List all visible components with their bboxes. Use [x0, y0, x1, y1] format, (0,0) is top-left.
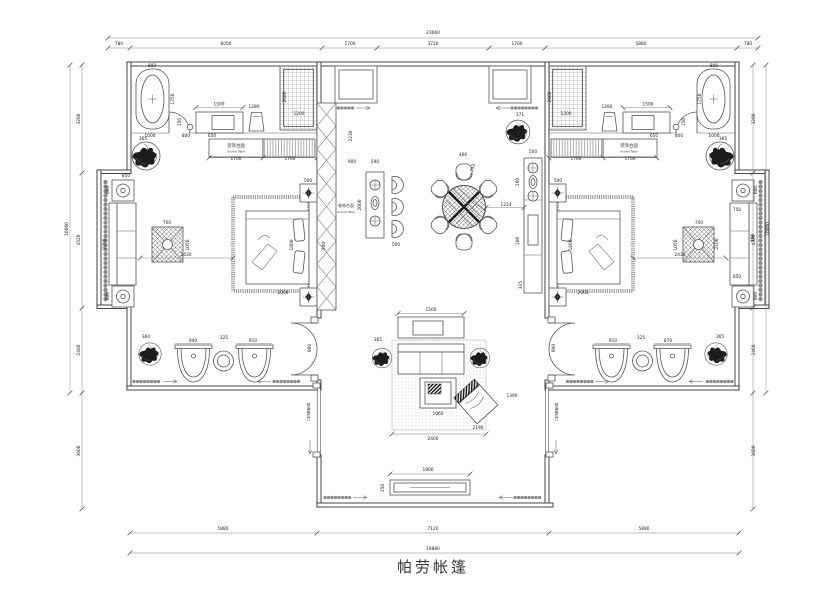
dim-label: 1700 — [285, 156, 296, 162]
dim-label: 590 — [371, 159, 379, 165]
dim-label: 1224 — [501, 202, 512, 208]
dim-label: 800 — [710, 63, 718, 69]
dim-label: 700 — [695, 220, 703, 226]
dim-label: 500 — [529, 149, 537, 155]
dim-label: 160 — [515, 237, 521, 245]
dim-label: 365 — [716, 334, 724, 340]
dim-label: 900 — [551, 344, 557, 352]
dim-label: 650 — [208, 133, 216, 139]
dim-label: 2000 — [357, 199, 363, 210]
dim-label: 500 — [554, 178, 562, 184]
dim-label: 1200 — [294, 111, 305, 117]
dim-label: 1800 — [423, 467, 434, 473]
dim-label: 1700 — [571, 156, 582, 162]
plan-label: 玻璃推拉门 — [306, 402, 311, 421]
dim-label: 2000 — [278, 290, 289, 296]
dim-label: 1700 — [231, 156, 242, 162]
plan-label: Accent Table — [227, 150, 245, 154]
dim-label: 2680 — [547, 91, 553, 102]
dim-label: 600 — [105, 186, 111, 194]
dim-label: 1280 — [249, 104, 260, 110]
dim-label: 800 — [182, 133, 190, 139]
dim-label: 350 — [380, 484, 386, 492]
dim-label: 466 — [459, 152, 467, 158]
side-console — [524, 158, 542, 293]
dim-label: 3280 — [76, 113, 82, 124]
entry-planter-right — [489, 66, 531, 103]
dim-label: 5880 — [636, 41, 647, 47]
dim-label: 365 — [139, 136, 147, 142]
dim-label: 360 — [142, 334, 150, 340]
plan-label: 玻璃推拉门 — [554, 402, 559, 421]
dim-label: 1700 — [512, 41, 523, 47]
dim-label: 10060 — [765, 222, 771, 236]
tv-sideboard — [396, 311, 467, 338]
dim-label: 1500 — [214, 102, 225, 108]
dim-label: 1050 — [673, 239, 679, 250]
plan-label: Accent Table — [337, 210, 355, 214]
dim-label: 3600 — [751, 445, 757, 456]
dim-label: 800 — [675, 133, 683, 139]
left-wing-plan — [97, 62, 321, 507]
dim-label: 1200 — [561, 111, 572, 117]
dim-label: 3600 — [76, 445, 82, 456]
side-table-left — [372, 348, 392, 368]
dim-label: 1750 — [697, 93, 703, 104]
dim-label: 2430 — [675, 252, 686, 258]
bar-console — [366, 172, 384, 238]
dim-label: 1280 — [602, 104, 613, 110]
center-plant — [506, 120, 530, 144]
dim-label: 160 — [515, 178, 521, 186]
dim-label: 910 — [609, 338, 617, 344]
dim-label: 1390 — [507, 393, 518, 399]
entry-planter-left — [335, 66, 377, 103]
dim-label: 900 — [348, 159, 356, 165]
dim-label: 365 — [374, 337, 382, 343]
dim-label: 600 — [105, 292, 111, 300]
dim-label: 800 — [148, 63, 156, 69]
dim-label: 2680 — [282, 91, 288, 102]
bottom-curtains — [325, 496, 541, 500]
dim-label: 2460 — [76, 344, 82, 355]
dim-label: 1750 — [170, 93, 176, 104]
dim-label: 325 — [518, 281, 524, 289]
dim-label: 7120 — [428, 526, 439, 532]
dim-label: 1500 — [426, 307, 437, 313]
top-wall — [127, 62, 739, 66]
dim-label: 600 — [753, 292, 759, 300]
diamond-partition — [317, 103, 336, 310]
dim-label: 500 — [321, 242, 327, 250]
dim-label: 940 — [189, 338, 197, 344]
dim-label: 1800 — [289, 239, 295, 250]
dim-label: 2000 — [578, 290, 589, 296]
bar-stools — [392, 177, 403, 238]
dim-label: 850 — [122, 173, 130, 179]
dim-label: 1050 — [185, 239, 191, 250]
dim-label: 150 — [681, 118, 687, 126]
dim-label: 3280 — [751, 113, 757, 124]
dim-label: 1800 — [568, 239, 574, 250]
bottom-wall — [317, 503, 553, 507]
dim-label: 600 — [753, 186, 759, 194]
dim-label: 150 — [177, 118, 183, 126]
dim-label: 500 — [304, 178, 312, 184]
dim-label: 400 — [750, 234, 756, 242]
floor-plan-canvas: 2366078060001700372017005880780588071205… — [0, 0, 837, 592]
dim-label: 325 — [220, 335, 228, 341]
dim-label: 5880 — [218, 526, 229, 532]
dim-label: 780 — [744, 41, 752, 47]
dim-label: 1700 — [625, 156, 636, 162]
dim-label: 1500 — [643, 102, 654, 108]
dim-label: 325 — [637, 335, 645, 341]
dim-label: 780 — [115, 41, 123, 47]
dim-label: 2400 — [428, 436, 439, 442]
dim-label: 500 — [392, 242, 400, 248]
dim-label: 910 — [249, 338, 257, 344]
dim-label: 650 — [650, 133, 658, 139]
dim-label: 870 — [664, 338, 672, 344]
plan-label: 装饰台面 — [620, 142, 638, 149]
dim-label: 1060 — [433, 411, 444, 417]
entry-curtains — [328, 106, 538, 110]
dim-label: 700 — [163, 220, 171, 226]
drawing-title: 帕劳帐篷 — [397, 558, 469, 576]
dim-label: 2700 — [102, 238, 108, 249]
dim-label: 3720 — [428, 41, 439, 47]
dining-table — [429, 164, 527, 250]
dim-label: 2190 — [473, 425, 484, 431]
right-wing-plan — [545, 62, 769, 507]
center-sofa — [398, 344, 464, 374]
plan-label: 装饰台面 — [227, 142, 245, 149]
floor-plan-drawing: 2366078060001700372017005880780588071205… — [0, 0, 837, 592]
dimension-labels: 2366078060001700372017005880780588071205… — [64, 30, 771, 552]
dim-label: 1700 — [345, 41, 356, 47]
tv-bench — [388, 472, 473, 495]
dim-label: 365 — [719, 136, 727, 142]
dim-label: 5880 — [639, 526, 650, 532]
plan-label: 装饰台面 — [338, 202, 354, 208]
dim-label: 4320 — [76, 234, 82, 245]
dim-label: 10060 — [64, 222, 70, 236]
dim-label: 2230 — [348, 130, 354, 141]
dim-label: 6000 — [221, 41, 232, 47]
plan-label: Accent Table — [620, 150, 638, 154]
dim-label: 18880 — [426, 546, 440, 552]
dim-label: 752 — [469, 163, 477, 173]
center-coffee-table — [420, 378, 456, 408]
dim-label: 371 — [516, 112, 524, 118]
dim-label: 2430 — [181, 252, 192, 258]
dim-label: 2100 — [714, 238, 720, 249]
dim-label: 750 — [733, 207, 741, 213]
dim-label: 900 — [307, 344, 313, 352]
dim-label: 850 — [733, 274, 741, 280]
dim-label: 2460 — [751, 344, 757, 355]
dim-label: 23660 — [426, 30, 440, 36]
